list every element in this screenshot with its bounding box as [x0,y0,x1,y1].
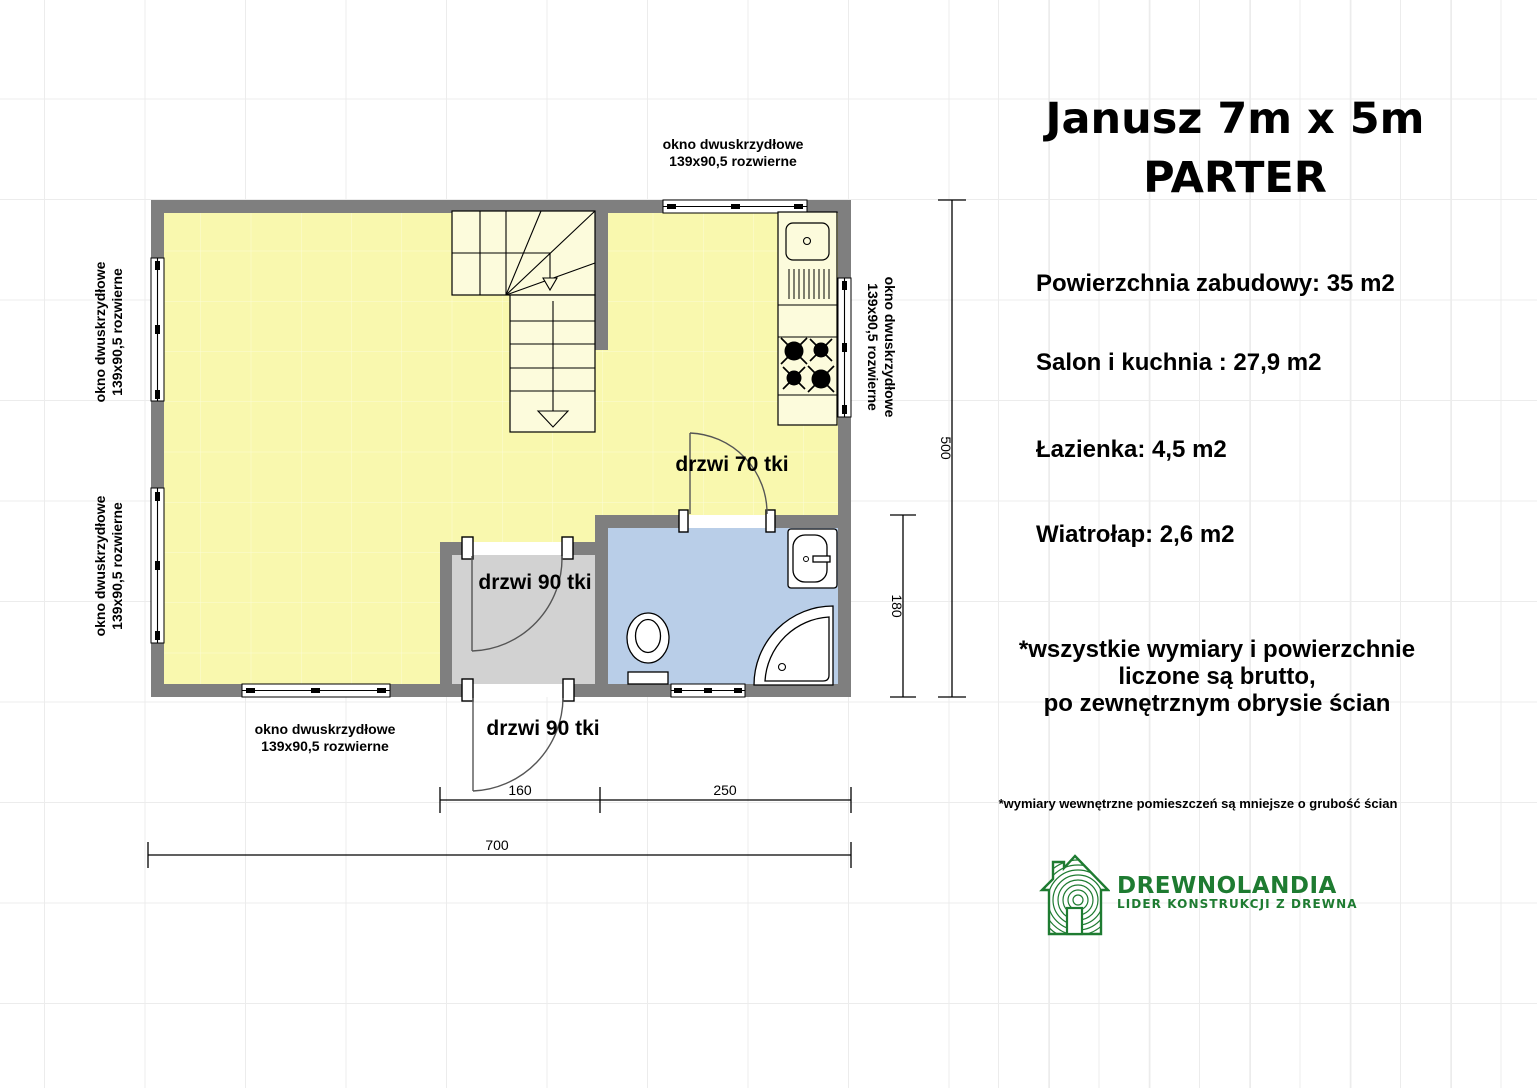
kitchen-sink [786,223,829,260]
door-label-vestibule: drzwi 90 tki [425,571,645,595]
door-swing-entrance [473,698,563,791]
window-bottom-left [242,684,390,697]
stat-total-area: Powierzchnia zabudowy: 35 m2 [1036,270,1395,298]
note-internal-dimensions: *wymiary wewnętrzne pomieszczeń są mniej… [998,796,1398,811]
dimension-label-700: 700 [447,837,547,853]
stat-vestibule: Wiatrołap: 2,6 m2 [1036,521,1235,549]
washbasin [788,529,837,588]
window-label-right: okno dwuskrzydłowe139x90,5 rozwierne [864,247,898,447]
dimension-label-500: 500 [938,398,954,498]
page: okno dwuskrzydłowe139x90,5 rozwierne okn… [0,0,1537,1088]
floor-name: PARTER [1015,149,1455,208]
window-label-left-lower: okno dwuskrzydłowe139x90,5 rozwierne [92,466,126,666]
window-left-lower [151,488,164,643]
project-name: Janusz 7m x 5m [1015,90,1455,149]
window-top [663,200,807,213]
logo-house-icon [1038,854,1110,936]
window-label-top: okno dwuskrzydłowe139x90,5 rozwierne [633,136,833,170]
door-label-bathroom: drzwi 70 tki [622,453,842,477]
dimension-label-250: 250 [675,782,775,798]
logo-name: DREWNOLANDIA [1117,873,1337,899]
window-right [838,278,851,417]
toilet [627,613,669,684]
dimension-label-180: 180 [889,556,905,656]
door-label-entrance: drzwi 90 tki [433,717,653,741]
note-gross-dimensions: *wszystkie wymiary i powierzchnie liczon… [1017,636,1417,717]
dimension-label-160: 160 [470,782,570,798]
logo-house-door [1067,908,1082,934]
stat-living-kitchen: Salon i kuchnia : 27,9 m2 [1036,349,1321,377]
page-title: Janusz 7m x 5m PARTER [1015,90,1455,208]
window-label-bottom-left: okno dwuskrzydłowe139x90,5 rozwierne [225,721,425,755]
stat-bathroom: Łazienka: 4,5 m2 [1036,436,1227,464]
window-bathroom [671,684,745,697]
kitchen-counter [778,212,837,425]
window-label-left-upper: okno dwuskrzydłowe139x90,5 rozwierne [92,232,126,432]
logo-tagline: LIDER KONSTRUKCJI Z DREWNA [1117,897,1358,911]
window-left-upper [151,258,164,401]
